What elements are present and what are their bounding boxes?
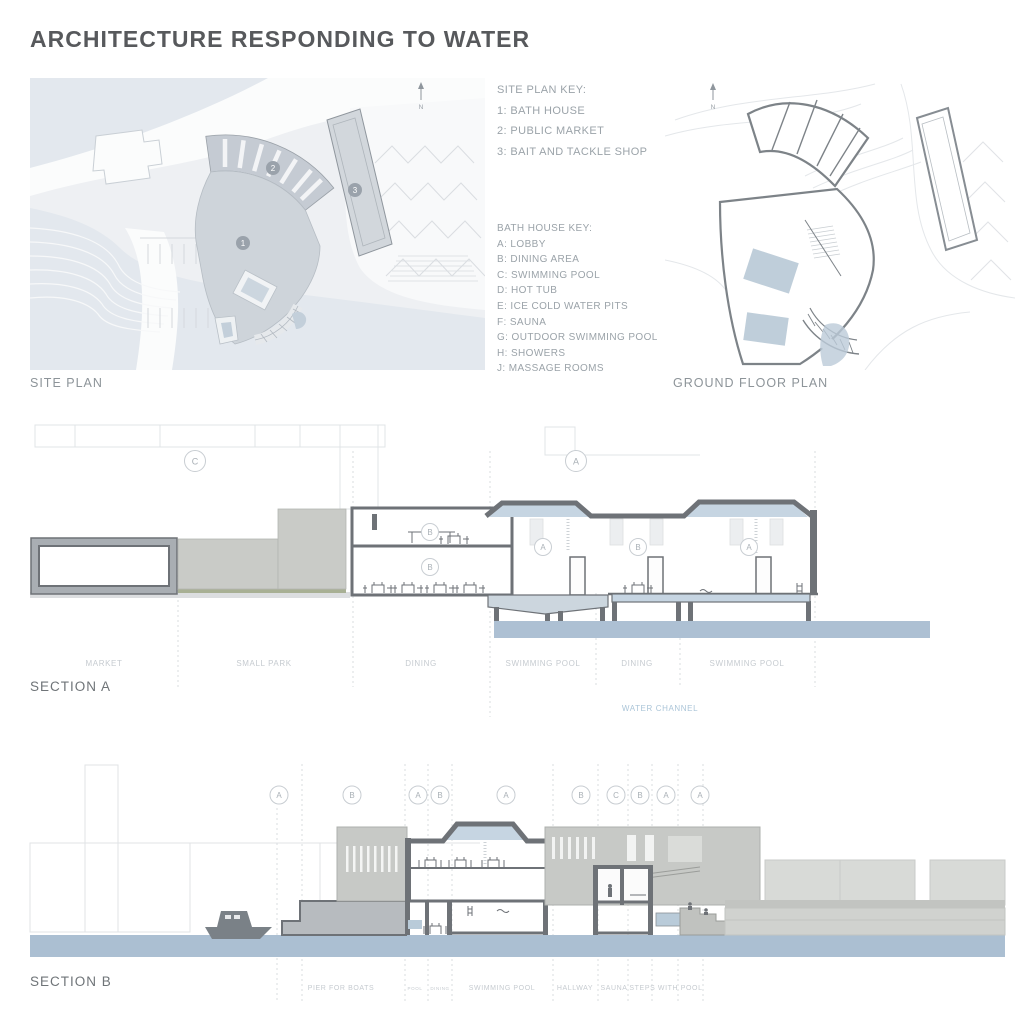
section-a-drawing: C A	[0, 415, 1030, 725]
zone-label: DINING	[621, 659, 653, 668]
svg-text:B: B	[578, 791, 583, 800]
grid-marker: C	[607, 786, 625, 804]
key-item: B: DINING AREA	[497, 254, 658, 270]
swimmer	[700, 590, 712, 593]
steps-pool-water	[656, 913, 680, 926]
room-marker: A	[535, 539, 552, 556]
svg-text:A: A	[415, 791, 421, 800]
key-item: 1: BATH HOUSE	[497, 105, 647, 126]
grid-marker: B	[631, 786, 649, 804]
bath-hall-section	[405, 824, 548, 935]
svg-text:A: A	[540, 543, 546, 552]
section-a-label: SECTION A	[30, 679, 111, 694]
key-item: E: ICE COLD WATER PITS	[497, 301, 658, 317]
water-channel	[494, 621, 930, 638]
small-pool	[408, 920, 422, 929]
svg-text:A: A	[663, 791, 669, 800]
key-item: A: LOBBY	[497, 239, 658, 255]
bath-house-section: B B A B A	[352, 502, 818, 637]
svg-text:B: B	[427, 563, 432, 572]
presentation-board: ARCHITECTURE RESPONDING TO WATER	[0, 0, 1030, 1030]
zone-labels: PIER FOR BOATS POOL DINING SWIMMING POOL…	[308, 985, 703, 992]
svg-text:B: B	[349, 791, 354, 800]
svg-text:C: C	[192, 457, 199, 467]
grid-marker: B	[431, 786, 449, 804]
site-marker-1: 1	[236, 236, 250, 250]
pool-ladder	[797, 583, 802, 594]
key-item: 3: BAIT AND TACKLE SHOP	[497, 146, 647, 167]
site-marker-2: 2	[266, 161, 280, 175]
svg-text:3: 3	[353, 186, 358, 195]
grid-marker: A	[691, 786, 709, 804]
section-b-drawing: A B A B A B C B A A	[0, 750, 1030, 1030]
water-channel	[30, 935, 1005, 957]
zone-label: HALLWAY	[557, 985, 593, 992]
zone-label: SWIMMING POOL	[506, 659, 581, 668]
key-item: C: SWIMMING POOL	[497, 270, 658, 286]
slatted-facade	[337, 827, 407, 901]
grid-marker: A	[270, 786, 288, 804]
grid-markers: A B A B A B C B A A	[270, 786, 709, 804]
key-item: G: OUTDOOR SWIMMING POOL	[497, 332, 658, 348]
site-plan-label: SITE PLAN	[30, 376, 103, 390]
bath-house-plan	[720, 100, 874, 366]
zone-label: SWIMMING POOL	[469, 985, 536, 992]
outdoor-pool	[820, 323, 849, 366]
grid-marker: A	[657, 786, 675, 804]
ground-floor-plan-drawing: N	[665, 80, 1015, 370]
zone-label: STEPS WITH POOL	[629, 985, 702, 992]
svg-text:N: N	[711, 104, 716, 111]
svg-text:1: 1	[241, 239, 246, 248]
ground-floor-plan-label: GROUND FLOOR PLAN	[673, 376, 828, 390]
site-marker-3: 3	[348, 183, 362, 197]
background-buildings	[725, 860, 1005, 935]
key-item: F: SAUNA	[497, 317, 658, 333]
zone-label: MARKET	[86, 659, 123, 668]
key-item: 2: PUBLIC MARKET	[497, 125, 647, 146]
zone-label: SWIMMING POOL	[710, 659, 785, 668]
roof	[486, 502, 812, 517]
site-plan-drawing: 1 2 3 N	[30, 78, 485, 370]
grid-marker: B	[572, 786, 590, 804]
svg-text:B: B	[437, 791, 442, 800]
grid-marker-c: C	[185, 451, 206, 472]
grid-marker: A	[409, 786, 427, 804]
room-marker: B	[422, 559, 439, 576]
zone-label: SMALL PARK	[236, 659, 291, 668]
north-arrow: N	[710, 83, 716, 111]
svg-text:A: A	[276, 791, 282, 800]
svg-text:A: A	[697, 791, 703, 800]
key-item: J: MASSAGE ROOMS	[497, 363, 658, 379]
market-section	[31, 538, 177, 594]
room-marker: B	[422, 524, 439, 541]
zone-label: DINING	[405, 659, 437, 668]
svg-text:C: C	[613, 791, 619, 800]
grid-marker-a: A	[566, 451, 587, 472]
grid-marker: B	[343, 786, 361, 804]
grid-marker: A	[497, 786, 515, 804]
svg-text:B: B	[637, 791, 642, 800]
zone-label: SAUNA	[600, 985, 627, 992]
svg-text:N: N	[419, 104, 424, 111]
background-outlines	[35, 425, 700, 509]
svg-text:B: B	[635, 543, 640, 552]
small-park-blocks	[178, 509, 346, 589]
site-plan-key: SITE PLAN KEY: 1: BATH HOUSE 2: PUBLIC M…	[497, 84, 647, 166]
zone-label: PIER FOR BOATS	[308, 985, 375, 992]
key-item: H: SHOWERS	[497, 348, 658, 364]
water-channel-label: WATER CHANNEL	[622, 704, 698, 713]
zone-label: DINING	[430, 986, 449, 991]
svg-text:2: 2	[271, 164, 276, 173]
room-marker: A	[741, 539, 758, 556]
bait-shop-plan	[917, 108, 977, 250]
page-title: ARCHITECTURE RESPONDING TO WATER	[30, 26, 530, 53]
room-marker: B	[630, 539, 647, 556]
svg-text:A: A	[573, 457, 579, 467]
site-plan-key-title: SITE PLAN KEY:	[497, 84, 647, 105]
svg-text:B: B	[427, 528, 432, 537]
raised-pool-water	[612, 594, 810, 602]
svg-text:A: A	[746, 543, 752, 552]
svg-text:A: A	[503, 791, 509, 800]
boat	[205, 911, 272, 939]
bath-house-key: BATH HOUSE KEY: A: LOBBY B: DINING AREA …	[497, 223, 658, 379]
person-figure	[608, 884, 612, 897]
pool-ladder	[468, 906, 472, 916]
key-item: D: HOT TUB	[497, 285, 658, 301]
zone-label: POOL	[408, 986, 423, 991]
doors	[570, 557, 771, 595]
swimmer	[497, 910, 509, 913]
pier	[282, 901, 406, 935]
bath-house-key-title: BATH HOUSE KEY:	[497, 223, 658, 239]
section-b-label: SECTION B	[30, 974, 112, 989]
